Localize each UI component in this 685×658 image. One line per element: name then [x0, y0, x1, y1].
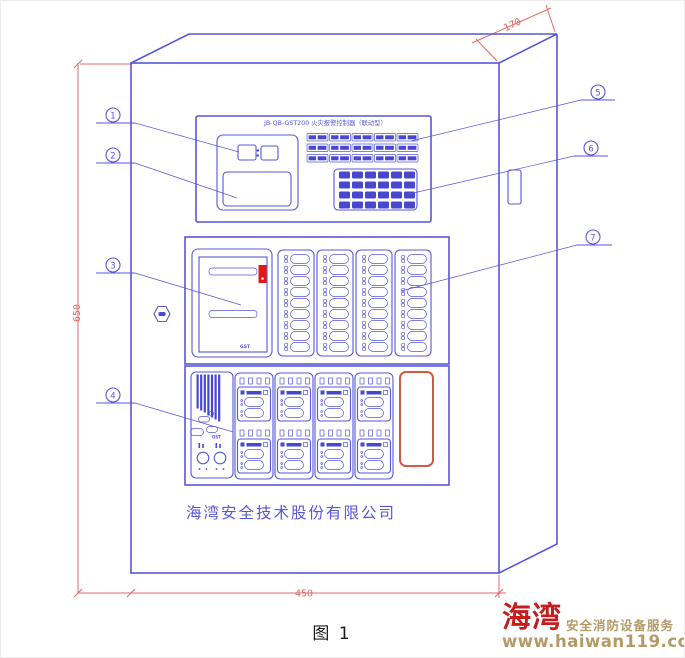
indicator-column — [317, 250, 353, 356]
dimension-height: 650 — [72, 60, 132, 597]
callout-6-num: 6 — [588, 145, 593, 155]
printer-module: GST — [192, 249, 272, 357]
cabinet-side-face — [499, 34, 557, 573]
indicator-column — [278, 250, 314, 356]
lcd-module — [217, 135, 298, 210]
dimension-depth-value: 170 — [502, 17, 523, 35]
callout-2: 2 — [96, 148, 237, 198]
keypad — [334, 169, 417, 210]
callout-1-num: 1 — [110, 112, 115, 122]
callout-4-num: 4 — [110, 392, 115, 402]
lcd-button-left — [238, 145, 256, 160]
zone-control-panel: GST — [185, 366, 449, 485]
control-panel-drawing: 650 450 170 JB-QB-GST200 火灾报警控制器（联动型） — [1, 1, 685, 658]
dimension-width: 450 — [78, 575, 506, 600]
callout-3-num: 3 — [110, 262, 115, 272]
dimension-depth: 170 — [472, 5, 555, 61]
audio-module: GST — [191, 372, 234, 478]
lcd-screen — [223, 172, 291, 206]
printer-paper-slot — [209, 268, 257, 275]
mic-logo: GST — [212, 435, 221, 440]
brand-footer: 海湾 安全消防设备服务 www.haiwan119.com — [502, 602, 684, 651]
side-handle — [508, 170, 521, 204]
zone-column — [275, 373, 313, 479]
callout-5-num: 5 — [595, 89, 600, 99]
callout-3: 3 — [96, 258, 241, 305]
lcd-button-right — [261, 146, 278, 160]
callout-7-num: 7 — [590, 234, 595, 244]
alarm-led — [259, 265, 267, 283]
brand-url: www.haiwan119.com — [502, 632, 684, 651]
model-title: JB-QB-GST200 火灾报警控制器（联动型） — [263, 118, 387, 127]
status-indicator-grid — [307, 134, 418, 163]
key-lock — [154, 307, 170, 322]
printer-logo: GST — [240, 344, 251, 350]
zone-column — [315, 373, 353, 479]
callout-7: 7 — [401, 230, 612, 291]
callout-2-num: 2 — [110, 152, 115, 162]
speaker-grille — [197, 375, 221, 422]
cabinet-front-face — [131, 63, 499, 573]
cabinet-outline — [131, 34, 557, 573]
callout-5: 5 — [411, 85, 615, 141]
indicator-panel: GST — [185, 237, 449, 364]
indicator-columns — [278, 250, 431, 356]
jack-sockets — [197, 443, 226, 470]
figure-caption: 图 1 — [287, 619, 377, 644]
cabinet-top-face — [131, 34, 557, 63]
dimension-height-value: 650 — [72, 304, 83, 322]
figure-canvas: 650 450 170 JB-QB-GST200 火灾报警控制器（联动型） — [0, 0, 685, 658]
printer-tear-slot — [209, 311, 257, 318]
display-panel: JB-QB-GST200 火灾报警控制器（联动型） — [196, 116, 431, 222]
zone-column — [355, 373, 393, 479]
indicator-column — [395, 250, 431, 356]
zone-label-window — [400, 372, 433, 466]
dimension-width-value: 450 — [295, 589, 313, 600]
company-name: 海湾安全技术股份有限公司 — [186, 504, 396, 522]
brand-logo: 海湾 — [502, 602, 562, 632]
indicator-column — [356, 250, 392, 356]
zone-column — [235, 373, 273, 479]
